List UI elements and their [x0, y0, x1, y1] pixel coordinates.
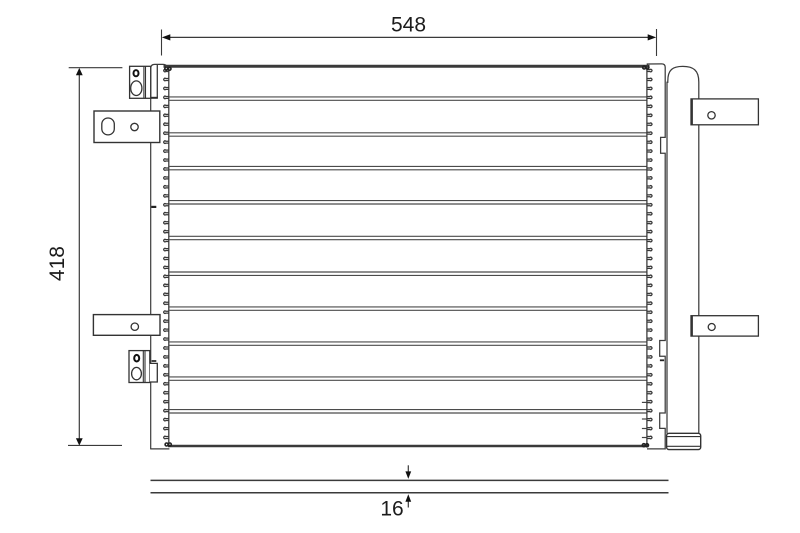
- svg-text:418: 418: [46, 246, 69, 281]
- svg-text:16: 16: [380, 497, 403, 520]
- svg-text:548: 548: [391, 13, 426, 36]
